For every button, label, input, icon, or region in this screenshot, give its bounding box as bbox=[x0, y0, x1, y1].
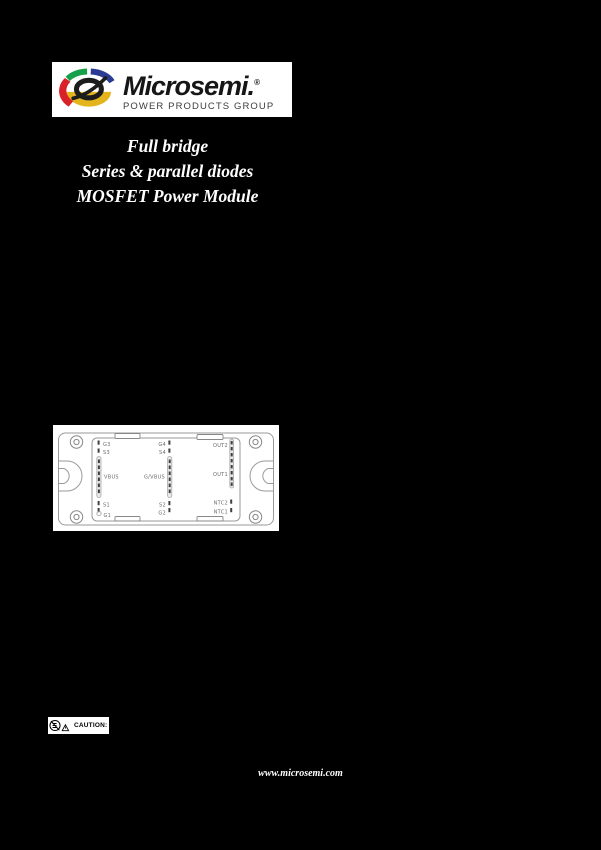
document-title: Full bridge Series & parallel diodes MOS… bbox=[40, 134, 295, 209]
pin-label-out2: OUT2 bbox=[213, 443, 228, 449]
pin-label-s2: S2 bbox=[159, 503, 166, 509]
pin-label-ntc1: NTC1 bbox=[214, 510, 228, 516]
left-pin-marks bbox=[97, 441, 101, 516]
out-pin-strip bbox=[230, 439, 234, 488]
title-line-2: Series & parallel diodes bbox=[40, 159, 295, 184]
pin-label-s3: S3 bbox=[103, 450, 110, 456]
right-notch-outer bbox=[250, 461, 274, 491]
mounting-hole-top-left bbox=[70, 436, 82, 448]
module-outline-group bbox=[59, 433, 274, 525]
pin-label-vbus: VBUS bbox=[104, 475, 119, 481]
left-notch-outer bbox=[59, 461, 83, 491]
pin-label-s4: S4 bbox=[159, 450, 166, 456]
esd-icon bbox=[49, 718, 73, 733]
left-notch-inner bbox=[59, 469, 70, 484]
esd-slash bbox=[51, 721, 59, 730]
microsemi-globe-icon bbox=[55, 66, 121, 114]
pin-label-out1: OUT1 bbox=[213, 472, 228, 478]
brand-name-text: Microsemi. bbox=[123, 71, 254, 101]
pin-labels: G3 S3 VBUS S1 G1 G4 S4 G/VBUS S2 G2 OUT2… bbox=[103, 442, 228, 519]
pin-label-ntc2: NTC2 bbox=[214, 501, 228, 507]
pin-label-g4: G4 bbox=[158, 442, 166, 448]
right-notch-inner bbox=[263, 469, 274, 484]
pin-label-g2: G2 bbox=[158, 511, 166, 517]
mounting-hole-top-right bbox=[249, 436, 261, 448]
registered-mark: ® bbox=[254, 78, 260, 87]
logo-green-ribbon bbox=[68, 71, 87, 78]
brand-subtitle: POWER PRODUCTS GROUP bbox=[123, 101, 274, 112]
datasheet-page: { "colors": { "page_bg": "#000000", "pan… bbox=[0, 0, 601, 850]
footer-url: www.microsemi.com bbox=[0, 768, 601, 779]
mounting-hole-bottom-left bbox=[70, 511, 82, 523]
mounting-hole-bottom-right bbox=[249, 511, 261, 523]
title-line-1: Full bridge bbox=[40, 134, 295, 159]
right-pin-marks bbox=[230, 439, 234, 512]
module-package-drawing: G3 S3 VBUS S1 G1 G4 S4 G/VBUS S2 G2 OUT2… bbox=[53, 425, 279, 531]
pin-label-g3: G3 bbox=[103, 442, 111, 448]
brand-name: Microsemi.® bbox=[123, 69, 274, 100]
module-outer-outline bbox=[59, 433, 274, 525]
caution-text: CAUTION: bbox=[74, 722, 107, 729]
esd-caution-label: CAUTION: bbox=[48, 717, 109, 734]
pin-label-s1: S1 bbox=[103, 503, 110, 509]
slot-bottom-left bbox=[115, 517, 140, 522]
brand-logo: Microsemi.® POWER PRODUCTS GROUP bbox=[52, 62, 292, 117]
brand-text-block: Microsemi.® POWER PRODUCTS GROUP bbox=[123, 69, 274, 112]
slot-bottom-right bbox=[197, 517, 223, 522]
slot-top-right bbox=[197, 435, 223, 440]
slot-top-left bbox=[115, 434, 140, 439]
pin-label-g1: G1 bbox=[104, 513, 112, 519]
title-line-3: MOSFET Power Module bbox=[40, 184, 295, 209]
pin-label-gvbus: G/VBUS bbox=[144, 475, 165, 481]
middle-pin-marks bbox=[168, 441, 172, 513]
